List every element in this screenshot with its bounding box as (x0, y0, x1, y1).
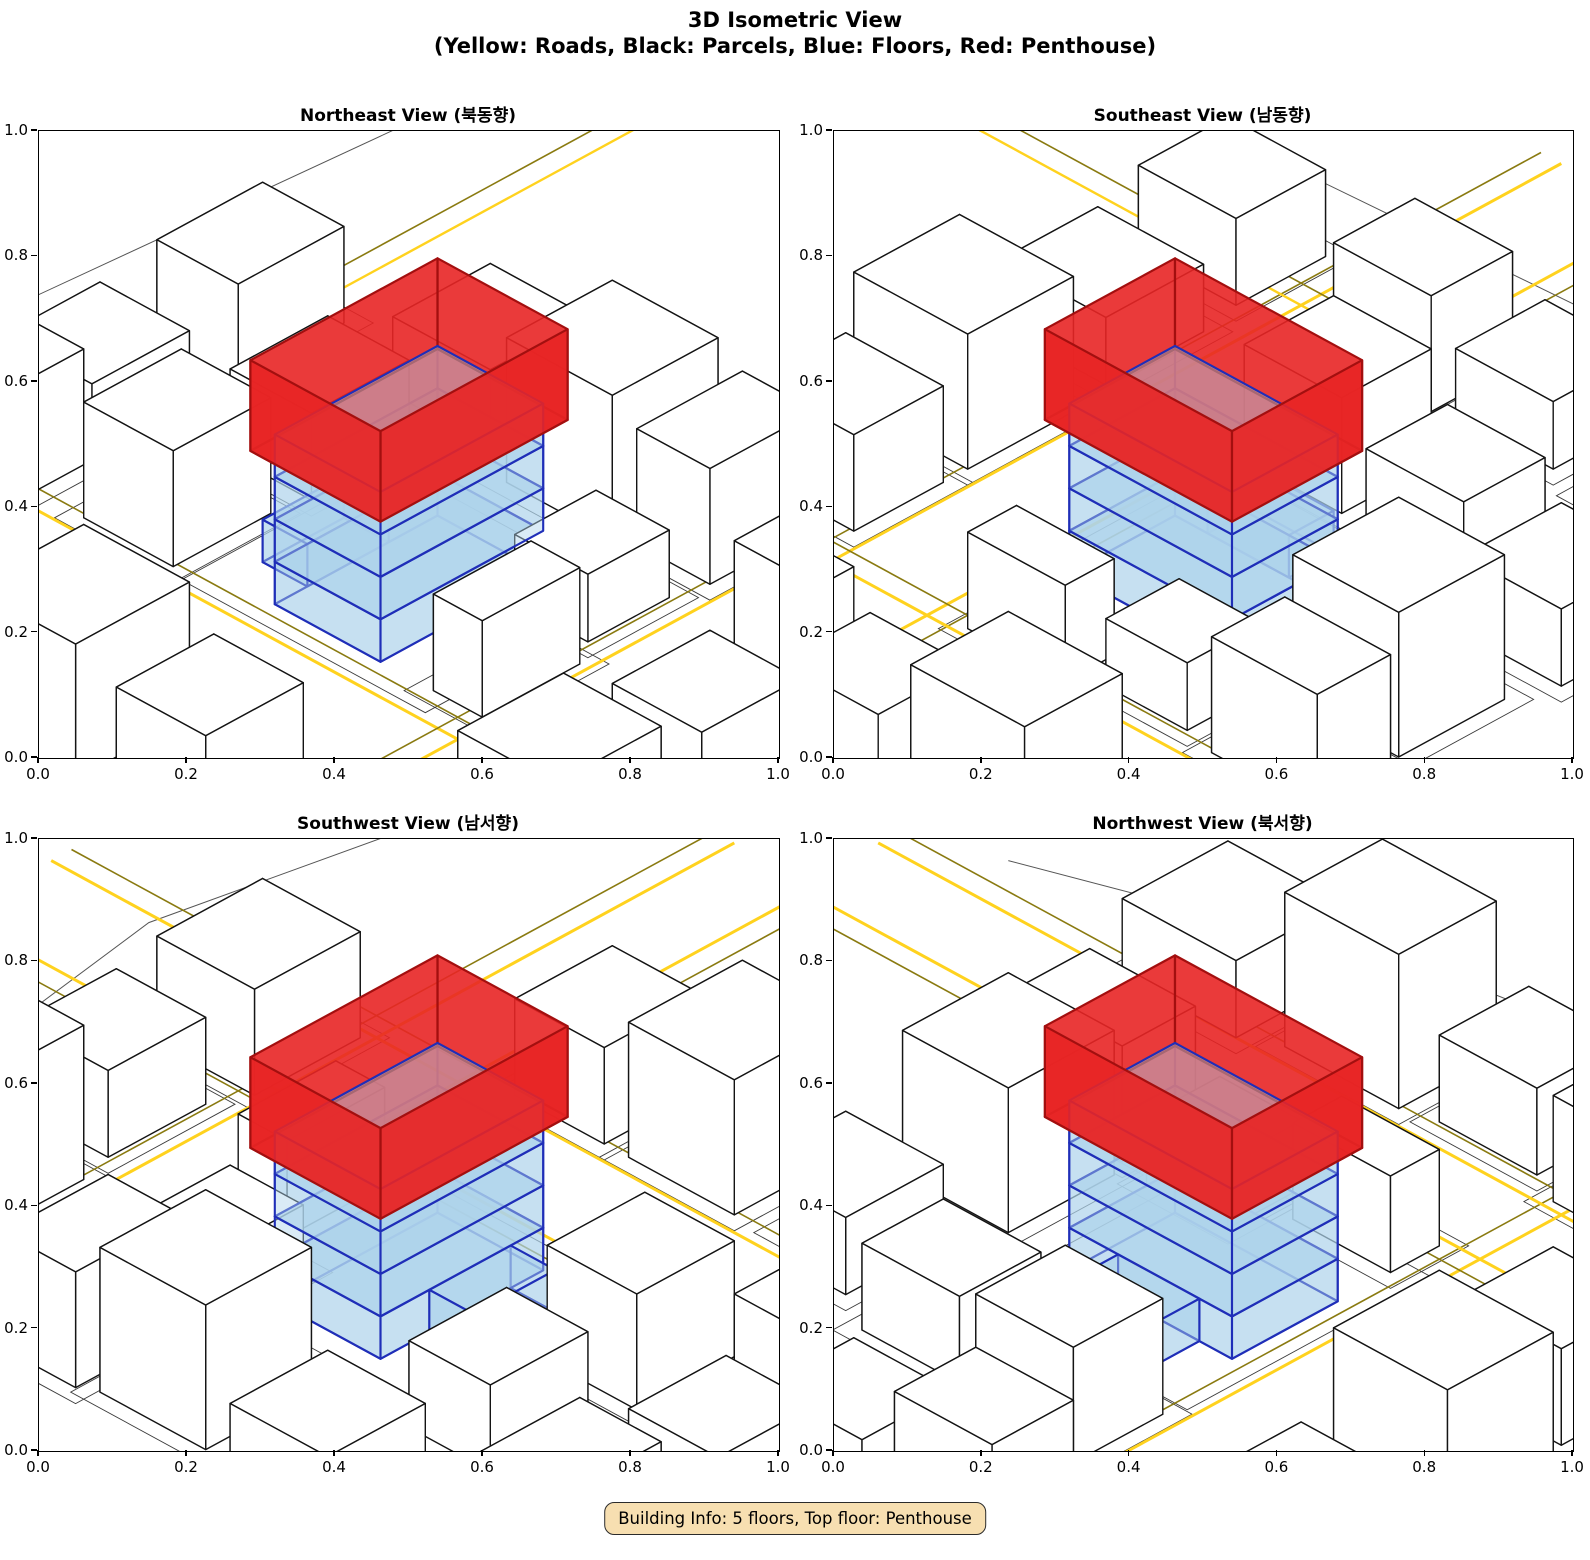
x-tick-label: 0.6 (470, 1458, 494, 1476)
y-tick-label: 1.0 (799, 829, 823, 847)
x-tick-label: 1.0 (766, 765, 790, 783)
x-tick-mark (333, 1450, 335, 1456)
x-tick-label: 0.8 (618, 1458, 642, 1476)
subplot-title-northeast: Northeast View (북동향) (38, 101, 778, 126)
x-tick-mark (37, 757, 39, 763)
x-tick-label: 1.0 (1560, 1458, 1584, 1476)
x-tick-label: 0.4 (1117, 765, 1141, 783)
x-tick-mark (629, 757, 631, 763)
subplot-southwest: Southwest View (남서향) 0.00.20.40.60.81.00… (38, 838, 778, 1450)
x-tick-label: 0.6 (1264, 1458, 1288, 1476)
x-tick-mark (832, 757, 834, 763)
y-tick-mark (826, 1327, 832, 1329)
x-tick-label: 0.2 (969, 765, 993, 783)
y-tick-label: 0.8 (799, 246, 823, 264)
subplot-northwest: Northwest View (북서향) 0.00.20.40.60.81.00… (833, 838, 1572, 1450)
x-tick-label: 0.8 (618, 765, 642, 783)
y-tick-label: 0.8 (4, 246, 28, 264)
x-tick-label: 0.2 (174, 1458, 198, 1476)
y-tick-mark (826, 129, 832, 131)
isometric-scene-southeast (833, 130, 1574, 759)
y-tick-label: 0.6 (4, 1074, 28, 1092)
y-tick-mark (826, 255, 832, 257)
y-tick-label: 0.8 (4, 951, 28, 969)
y-tick-label: 0.2 (4, 623, 28, 641)
y-tick-mark (826, 631, 832, 633)
x-tick-mark (1424, 1450, 1426, 1456)
x-tick-label: 0.2 (969, 1458, 993, 1476)
x-tick-label: 0.0 (26, 765, 50, 783)
x-tick-mark (1571, 757, 1573, 763)
y-tick-mark (826, 380, 832, 382)
y-tick-mark (826, 506, 832, 508)
x-tick-label: 1.0 (766, 1458, 790, 1476)
y-tick-mark (826, 1082, 832, 1084)
x-tick-label: 0.2 (174, 765, 198, 783)
y-tick-label: 0.2 (4, 1319, 28, 1337)
x-tick-mark (1571, 1450, 1573, 1456)
x-tick-mark (1128, 1450, 1130, 1456)
y-tick-label: 0.0 (4, 1441, 28, 1459)
y-tick-label: 0.6 (799, 372, 823, 390)
figure-title: 3D Isometric View (0, 7, 1590, 33)
x-tick-mark (333, 757, 335, 763)
y-tick-mark (31, 255, 37, 257)
x-tick-label: 0.0 (821, 1458, 845, 1476)
y-tick-label: 0.8 (799, 951, 823, 969)
x-tick-mark (481, 1450, 483, 1456)
x-tick-mark (1424, 757, 1426, 763)
y-tick-label: 1.0 (799, 121, 823, 139)
y-tick-label: 0.0 (799, 1441, 823, 1459)
isometric-scene-northeast (38, 130, 780, 759)
x-tick-label: 0.4 (1117, 1458, 1141, 1476)
subplot-northeast: Northeast View (북동향) 0.00.20.40.60.81.00… (38, 130, 778, 757)
x-tick-label: 0.0 (821, 765, 845, 783)
y-tick-mark (31, 380, 37, 382)
y-tick-mark (826, 756, 832, 758)
y-tick-label: 1.0 (4, 829, 28, 847)
y-tick-mark (31, 1327, 37, 1329)
y-tick-label: 0.6 (799, 1074, 823, 1092)
x-tick-label: 0.0 (26, 1458, 50, 1476)
subplot-title-southwest: Southwest View (남서향) (38, 809, 778, 834)
subplot-title-southeast: Southeast View (남동향) (833, 101, 1572, 126)
y-tick-label: 0.4 (4, 1196, 28, 1214)
y-tick-mark (31, 631, 37, 633)
y-tick-mark (826, 960, 832, 962)
y-tick-label: 0.2 (799, 1319, 823, 1337)
building-info-box: Building Info: 5 floors, Top floor: Pent… (604, 1502, 986, 1535)
y-tick-label: 0.4 (799, 1196, 823, 1214)
x-tick-mark (777, 757, 779, 763)
y-tick-mark (31, 756, 37, 758)
isometric-scene-southwest (38, 838, 780, 1452)
x-tick-label: 0.6 (1264, 765, 1288, 783)
y-tick-mark (826, 1449, 832, 1451)
y-tick-mark (826, 837, 832, 839)
isometric-scene-northwest (833, 838, 1574, 1452)
y-tick-label: 0.4 (4, 497, 28, 515)
x-tick-mark (1276, 757, 1278, 763)
x-tick-mark (185, 757, 187, 763)
y-tick-mark (31, 1205, 37, 1207)
y-tick-mark (31, 1082, 37, 1084)
x-tick-mark (481, 757, 483, 763)
x-tick-label: 0.6 (470, 765, 494, 783)
x-tick-mark (629, 1450, 631, 1456)
y-tick-mark (31, 1449, 37, 1451)
x-tick-mark (980, 757, 982, 763)
x-tick-mark (980, 1450, 982, 1456)
x-tick-mark (832, 1450, 834, 1456)
x-tick-label: 0.8 (1412, 1458, 1436, 1476)
x-tick-mark (1276, 1450, 1278, 1456)
y-tick-label: 0.0 (4, 748, 28, 766)
x-tick-mark (185, 1450, 187, 1456)
x-tick-label: 1.0 (1560, 765, 1584, 783)
x-tick-label: 0.4 (322, 765, 346, 783)
subplot-southeast: Southeast View (남동향) 0.00.20.40.60.81.00… (833, 130, 1572, 757)
y-tick-label: 0.4 (799, 497, 823, 515)
y-tick-label: 0.2 (799, 623, 823, 641)
y-tick-mark (31, 960, 37, 962)
y-tick-label: 1.0 (4, 121, 28, 139)
y-tick-label: 0.6 (4, 372, 28, 390)
y-tick-label: 0.0 (799, 748, 823, 766)
subplot-title-northwest: Northwest View (북서향) (833, 809, 1572, 834)
x-tick-label: 0.4 (322, 1458, 346, 1476)
x-tick-label: 0.8 (1412, 765, 1436, 783)
y-tick-mark (31, 506, 37, 508)
x-tick-mark (37, 1450, 39, 1456)
y-tick-mark (31, 837, 37, 839)
y-tick-mark (31, 129, 37, 131)
y-tick-mark (826, 1205, 832, 1207)
x-tick-mark (777, 1450, 779, 1456)
x-tick-mark (1128, 757, 1130, 763)
figure-subtitle: (Yellow: Roads, Black: Parcels, Blue: Fl… (0, 33, 1590, 59)
